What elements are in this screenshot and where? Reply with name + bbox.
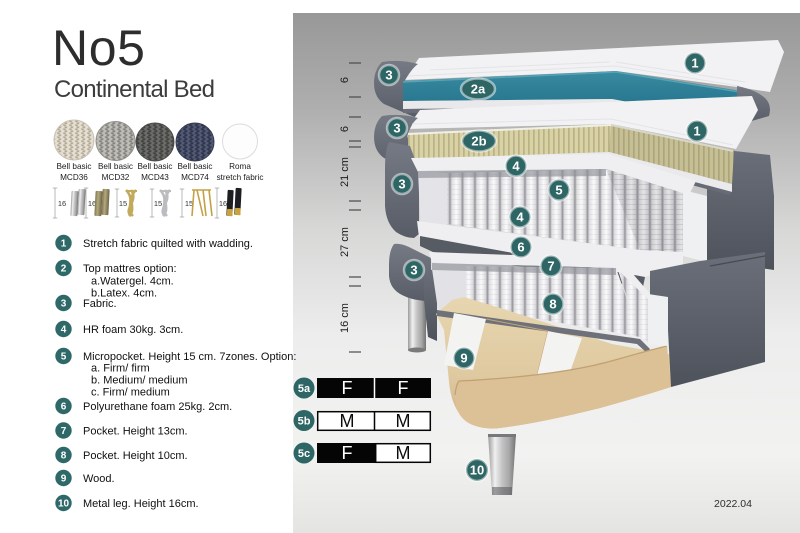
svg-text:HR foam 30kg. 3cm.: HR foam 30kg. 3cm. — [83, 324, 183, 336]
svg-text:16: 16 — [58, 199, 66, 208]
svg-text:MCD36: MCD36 — [60, 173, 88, 182]
svg-text:15: 15 — [154, 199, 162, 208]
svg-text:6: 6 — [339, 77, 351, 83]
svg-text:15: 15 — [119, 199, 127, 208]
svg-text:5b: 5b — [298, 416, 311, 428]
svg-text:9: 9 — [61, 474, 67, 485]
svg-text:M: M — [396, 443, 411, 463]
svg-text:M: M — [396, 411, 411, 431]
svg-text:4: 4 — [512, 159, 520, 174]
svg-text:5: 5 — [555, 183, 562, 198]
svg-text:8: 8 — [61, 451, 67, 462]
svg-text:1: 1 — [61, 239, 67, 250]
svg-text:3: 3 — [61, 299, 67, 310]
svg-text:4: 4 — [516, 210, 524, 225]
svg-text:stretch fabric: stretch fabric — [217, 173, 264, 182]
svg-text:Wood.: Wood. — [83, 473, 115, 485]
svg-text:Micropocket. Height 15 cm. 7zo: Micropocket. Height 15 cm. 7zones. Optio… — [83, 351, 296, 363]
svg-text:MCD32: MCD32 — [102, 173, 130, 182]
svg-text:2b: 2b — [471, 134, 486, 149]
svg-text:Stretch fabric quilted with wa: Stretch fabric quilted with wadding. — [83, 238, 253, 250]
svg-text:3: 3 — [385, 68, 392, 83]
svg-text:8: 8 — [549, 297, 556, 312]
svg-text:No5: No5 — [52, 20, 146, 76]
svg-text:a.Watergel. 4cm.: a.Watergel. 4cm. — [91, 276, 174, 288]
svg-text:Bell basic: Bell basic — [56, 162, 91, 171]
svg-text:F: F — [342, 443, 353, 463]
svg-text:c. Firm/ medium: c. Firm/ medium — [91, 387, 170, 399]
svg-text:16 cm: 16 cm — [339, 303, 351, 333]
svg-text:Bell basic: Bell basic — [137, 162, 172, 171]
svg-text:2: 2 — [61, 264, 67, 275]
svg-text:2022.04: 2022.04 — [714, 498, 752, 510]
svg-text:Pocket. Height 13cm.: Pocket. Height 13cm. — [83, 426, 188, 438]
svg-text:Bell basic: Bell basic — [98, 162, 133, 171]
svg-text:5a: 5a — [298, 383, 311, 395]
svg-text:10: 10 — [470, 463, 484, 478]
svg-text:3: 3 — [398, 177, 405, 192]
svg-text:4: 4 — [61, 325, 67, 336]
svg-text:M: M — [340, 411, 355, 431]
svg-text:Top mattres option:: Top mattres option: — [83, 263, 177, 275]
svg-text:5: 5 — [61, 352, 67, 363]
svg-text:6: 6 — [61, 402, 67, 413]
svg-text:MCD43: MCD43 — [141, 173, 169, 182]
svg-text:7: 7 — [61, 426, 67, 437]
svg-text:Fabric.: Fabric. — [83, 298, 117, 310]
svg-text:1: 1 — [693, 124, 700, 139]
svg-text:F: F — [398, 378, 409, 398]
svg-text:5c: 5c — [298, 448, 310, 460]
svg-text:Pocket. Height 10cm.: Pocket. Height 10cm. — [83, 450, 188, 462]
svg-text:3: 3 — [393, 121, 400, 136]
svg-text:MCD74: MCD74 — [181, 173, 209, 182]
svg-text:27 cm: 27 cm — [339, 227, 351, 257]
svg-text:2a: 2a — [471, 82, 486, 97]
svg-text:Bell basic: Bell basic — [177, 162, 212, 171]
svg-text:F: F — [342, 378, 353, 398]
svg-text:Roma: Roma — [229, 162, 251, 171]
svg-text:7: 7 — [547, 259, 554, 274]
svg-text:a. Firm/ firm: a. Firm/ firm — [91, 363, 150, 375]
svg-text:9: 9 — [460, 351, 467, 366]
svg-text:16: 16 — [219, 199, 227, 208]
svg-text:10: 10 — [58, 499, 70, 510]
svg-text:6: 6 — [517, 240, 524, 255]
svg-text:1: 1 — [691, 56, 698, 71]
svg-text:Metal leg. Height 16cm.: Metal leg. Height 16cm. — [83, 498, 199, 510]
svg-text:21 cm: 21 cm — [339, 157, 351, 187]
svg-text:Polyurethane foam 25kg. 2cm.: Polyurethane foam 25kg. 2cm. — [83, 401, 232, 413]
svg-text:3: 3 — [410, 263, 417, 278]
svg-text:6: 6 — [339, 126, 351, 132]
svg-text:Continental Bed: Continental Bed — [54, 76, 214, 103]
svg-text:b. Medium/ medium: b. Medium/ medium — [91, 375, 188, 387]
